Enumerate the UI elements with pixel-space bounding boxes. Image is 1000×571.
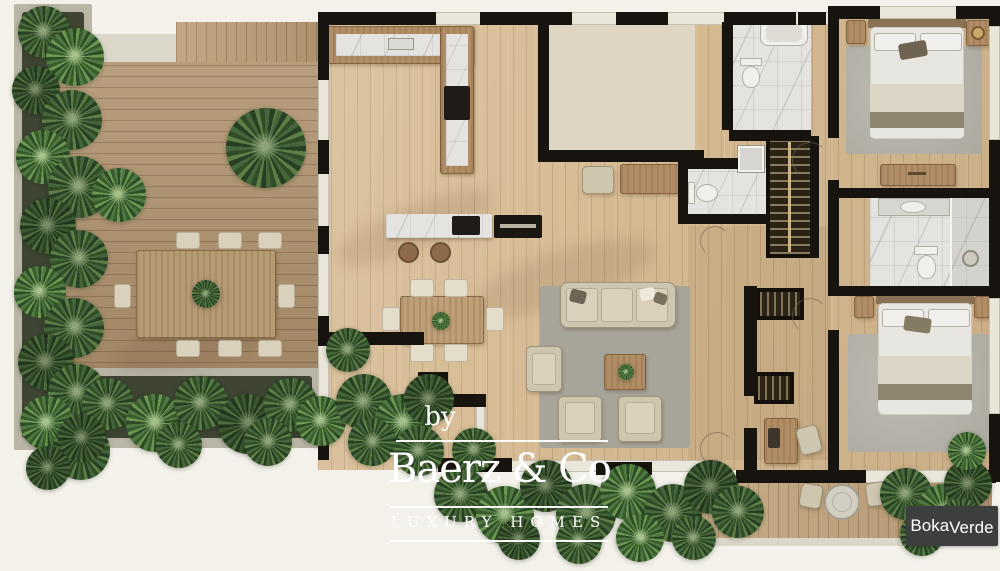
wall-segment (832, 6, 880, 19)
potted-plant (92, 168, 146, 222)
wall-segment (838, 286, 1000, 296)
skylight-void-panel (546, 22, 696, 152)
armchair-cushion (532, 353, 556, 385)
wall-segment (318, 140, 329, 174)
palm-plant (156, 422, 202, 468)
outdoor-dining-chair (176, 340, 200, 357)
dining-chair (486, 307, 504, 331)
wall-segment (828, 6, 839, 138)
dresser-handle (908, 172, 926, 175)
door-swing-arc (792, 142, 828, 178)
bed-foot (878, 402, 972, 412)
bed-runner (878, 384, 972, 400)
brand-logo-text-part1: Boka (910, 516, 949, 536)
desk-laptop (768, 428, 780, 448)
pillow (928, 309, 970, 327)
potted-plant (326, 328, 370, 372)
toilet-tank (740, 58, 762, 66)
outdoor-dining-chair (278, 284, 295, 308)
entry-ottoman (582, 166, 614, 194)
dining-chair (444, 344, 468, 362)
nightstand (854, 296, 874, 318)
toilet-tank (914, 246, 938, 255)
dining-centerpiece-plant (432, 312, 450, 330)
toilet-tank (688, 182, 695, 204)
closet (754, 372, 794, 404)
palm-plant (672, 516, 716, 560)
coffee-table-plant (618, 364, 634, 380)
tv-wall (744, 286, 757, 396)
wall-segment (724, 12, 796, 25)
outdoor-dining-chair (114, 284, 131, 308)
sofa-cushion (601, 288, 633, 322)
window-sill (989, 26, 1000, 140)
terrace-stool (798, 482, 824, 509)
brand-logo-text-part2: Verde (949, 518, 993, 538)
door-swing-arc (700, 226, 730, 256)
entry-bench (620, 164, 682, 194)
watermark-divider (390, 506, 608, 508)
bistro-table-inner (832, 492, 852, 512)
wall-segment (798, 12, 826, 25)
table-lamp (971, 26, 985, 40)
window-sill (989, 298, 1000, 414)
wall-segment (838, 188, 1000, 198)
watermark-by: by (418, 402, 462, 436)
bathtub-basin (766, 24, 802, 42)
outdoor-dining-chair (258, 340, 282, 357)
dining-chair (410, 344, 434, 362)
bar-stool (430, 242, 451, 263)
wall-segment (678, 158, 688, 222)
nightstand (846, 20, 866, 44)
wall-segment (480, 12, 572, 25)
toilet-bowl (696, 184, 718, 202)
watermark-divider (390, 540, 608, 542)
dresser (880, 164, 956, 186)
island-console-inlay (500, 224, 536, 228)
door-swing-arc (792, 298, 828, 334)
wall-segment (616, 12, 668, 25)
palm-plant (58, 414, 106, 462)
bed-runner (870, 112, 964, 128)
wall-segment (318, 25, 329, 80)
wall-segment (729, 130, 811, 141)
shower-tray (738, 146, 764, 172)
wall-segment (744, 428, 757, 473)
wall-segment (318, 226, 329, 254)
dining-chair (382, 307, 400, 331)
bar-stool (398, 242, 419, 263)
dining-chair (444, 279, 468, 297)
wall-segment (678, 214, 770, 224)
watermark-divider (396, 440, 608, 442)
wall-segment (722, 22, 733, 130)
shower-floor (952, 198, 990, 286)
outdoor-dining-chair (218, 232, 242, 249)
wardrobe-rail (788, 142, 791, 252)
shower-glass (950, 198, 952, 286)
brand-logo-badge: BokaVerde (906, 506, 998, 546)
watermark-brand: Baerz & Co (388, 446, 610, 502)
wall-segment (538, 22, 549, 160)
wall-segment (318, 12, 436, 25)
towel-stand (962, 250, 979, 267)
armchair-cushion (565, 402, 595, 434)
vanity-sink (900, 201, 926, 213)
oven (444, 86, 470, 120)
bed-foot (870, 128, 964, 138)
armchair-cushion (625, 402, 655, 434)
outdoor-dining-chair (218, 340, 242, 357)
toilet-bowl (742, 66, 760, 88)
cooktop (452, 216, 480, 235)
table-centerpiece-plant (192, 280, 220, 308)
outdoor-dining-chair (176, 232, 200, 249)
indoor-plant (948, 432, 986, 470)
watermark-tagline: LUXURY HOMES (390, 513, 608, 537)
dining-chair (410, 279, 434, 297)
toilet-bowl (917, 255, 936, 279)
wall-segment (828, 330, 839, 470)
floor-plan-rendering: by Baerz & Co LUXURY HOMES BokaVerde (0, 0, 1000, 571)
kitchen-sink (388, 38, 414, 50)
outdoor-dining-chair (258, 232, 282, 249)
